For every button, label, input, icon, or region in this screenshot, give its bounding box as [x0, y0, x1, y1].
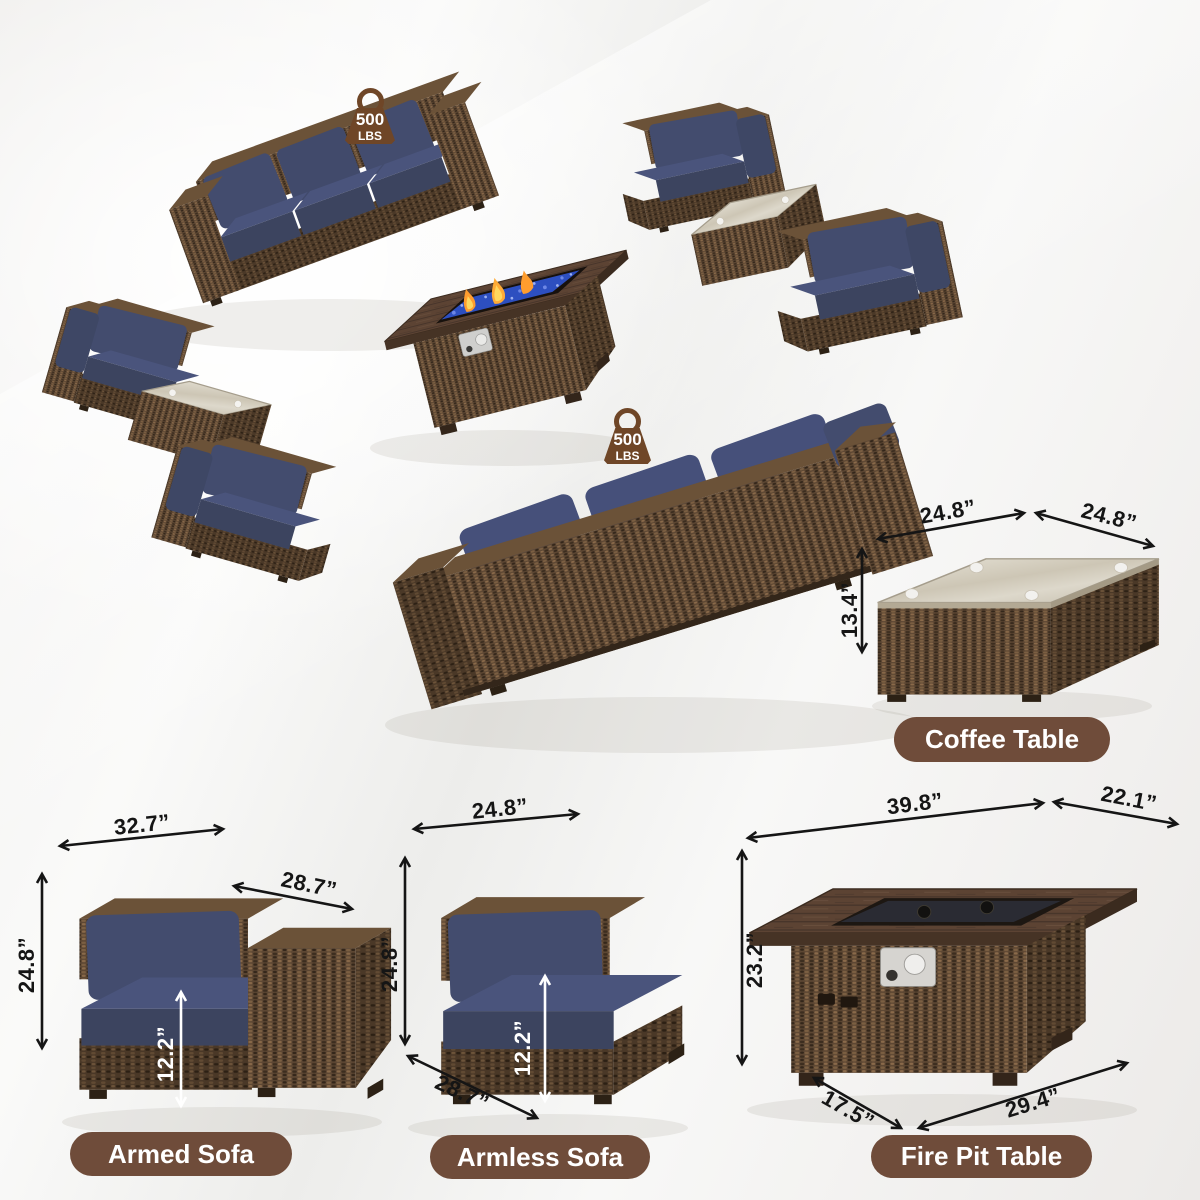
corner-chair-left-2 [149, 423, 351, 592]
dim-coffee-table-height: 13.4” [837, 582, 863, 638]
label-armless-sofa: Armless Sofa [430, 1135, 650, 1179]
label-fire-pit-table: Fire Pit Table [871, 1135, 1092, 1178]
weight-value: 500 [356, 111, 384, 128]
label-coffee-table: Coffee Table [894, 717, 1110, 762]
patio-furniture-infographic: 500 LBS 500 LBS 24.8” 24.8” 13.4” 32.7” … [0, 0, 1200, 1200]
armed-sofa-product [79, 898, 391, 1099]
weight-capacity-badge: 500 LBS [345, 88, 395, 144]
furniture-scene-graphics [0, 0, 1200, 1200]
three-seat-sofa-top [159, 66, 523, 310]
weight-capacity-badge: 500 LBS [604, 408, 651, 464]
dim-armless-sofa-height: 24.8” [377, 936, 403, 992]
dim-armless-sofa-seat-height: 12.2” [510, 1020, 536, 1076]
armless-sofa-product [441, 897, 684, 1104]
label-armed-sofa: Armed Sofa [70, 1132, 292, 1176]
weight-value: 500 [613, 431, 641, 448]
weight-unit: LBS [358, 130, 382, 142]
fire-pit-table-product [749, 889, 1137, 1086]
dim-armed-sofa-height: 24.8” [14, 937, 40, 993]
dim-fire-pit-height: 23.2” [742, 932, 768, 988]
dim-armed-sofa-seat-height: 12.2” [153, 1026, 179, 1082]
coffee-table-product [878, 559, 1159, 702]
weight-unit: LBS [616, 450, 640, 462]
